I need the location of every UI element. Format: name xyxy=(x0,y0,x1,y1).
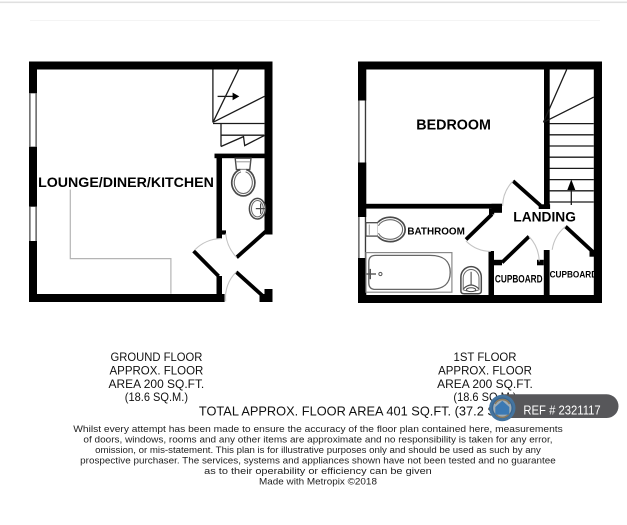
svg-text:LANDING: LANDING xyxy=(513,210,576,225)
svg-text:LOUNGE/DINER/KITCHEN: LOUNGE/DINER/KITCHEN xyxy=(38,175,214,191)
svg-text:of doors, windows, rooms and a: of doors, windows, rooms and any other i… xyxy=(83,434,552,444)
svg-text:REF # 2321117: REF # 2321117 xyxy=(523,403,600,417)
svg-text:APPROX. FLOOR: APPROX. FLOOR xyxy=(438,363,532,377)
svg-text:CUPBOARD: CUPBOARD xyxy=(550,269,598,280)
svg-text:GROUND FLOOR: GROUND FLOOR xyxy=(110,350,202,364)
svg-text:Made with Metropix ©2018: Made with Metropix ©2018 xyxy=(259,477,377,487)
svg-text:prospective purchaser. The ser: prospective purchaser. The services, sys… xyxy=(80,456,556,466)
svg-text:AREA 200 SQ.FT.: AREA 200 SQ.FT. xyxy=(437,377,533,391)
svg-text:(18.6 SQ.M.): (18.6 SQ.M.) xyxy=(125,390,188,404)
svg-text:omission, or mis-statement. Th: omission, or mis-statement. This plan is… xyxy=(95,445,541,455)
svg-text:AREA 200 SQ.FT.: AREA 200 SQ.FT. xyxy=(109,377,205,391)
svg-text:CUPBOARD: CUPBOARD xyxy=(495,273,543,285)
svg-text:as to their operability or eff: as to their operability or efficiency ca… xyxy=(204,466,432,476)
svg-text:BEDROOM: BEDROOM xyxy=(416,118,491,134)
svg-text:TOTAL APPROX. FLOOR AREA 401 S: TOTAL APPROX. FLOOR AREA 401 SQ.FT. (37.… xyxy=(199,404,528,419)
svg-text:Whilst every attempt has been: Whilst every attempt has been made to en… xyxy=(73,424,563,434)
svg-text:BATHROOM: BATHROOM xyxy=(407,226,464,237)
svg-text:1ST FLOOR: 1ST FLOOR xyxy=(454,350,517,364)
svg-text:APPROX. FLOOR: APPROX. FLOOR xyxy=(110,363,204,377)
